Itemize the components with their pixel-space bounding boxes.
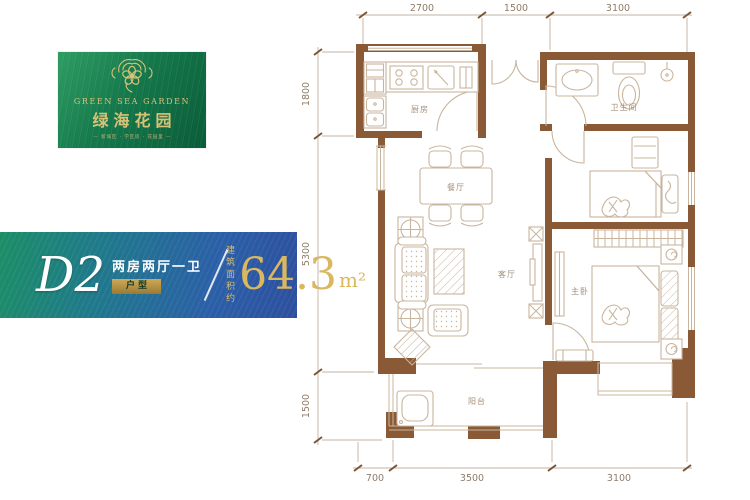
unit-code: D2: [36, 251, 105, 299]
dim-top-2: 1500: [504, 3, 528, 14]
area-prefix-line1: 建筑: [226, 245, 236, 269]
bathroom-fixtures: [556, 62, 673, 109]
kitchen-label: 厨房: [411, 104, 429, 114]
divider-slash: [204, 249, 229, 301]
dim-left-3: 1500: [301, 394, 312, 418]
unit-type-banner: D2 两房两厅一卫 户型 建筑 面积约 64.3 m²: [0, 232, 297, 318]
balcony-furniture: [397, 391, 433, 426]
dim-bottom-1: 700: [366, 473, 384, 484]
master-bedroom-label: 主卧: [571, 286, 589, 296]
dining-label: 餐厅: [447, 183, 465, 192]
bedroom2-furniture: [590, 137, 678, 217]
bedroom2-door: [552, 131, 584, 163]
dim-top-3: 3100: [606, 3, 630, 14]
entry-door-left: [492, 60, 516, 84]
living-label: 客厅: [498, 269, 516, 279]
entry-door-right: [516, 60, 538, 82]
balcony-label: 阳台: [468, 396, 486, 406]
brand-name-zh: 绿海花园: [87, 107, 176, 131]
dim-left-1: 1800: [301, 82, 312, 106]
dim-bottom-2: 3500: [460, 473, 484, 484]
page: GREEN SEA GARDEN 绿海花园 — 新城区 · 学区房 · 花园里 …: [0, 0, 750, 500]
bathroom-label: 卫生间: [611, 102, 638, 112]
floorplan: 2700 1500 3100 1800 5300 1500 700 3500 3…: [300, 0, 750, 500]
unit-desc-block: 两房两厅一卫 户型: [112, 256, 202, 294]
unit-type-badge: 户型: [112, 279, 161, 294]
area-prefix-line2: 面积约: [226, 269, 236, 305]
unit-layout-desc: 两房两厅一卫: [112, 256, 202, 275]
side-table-bottom: [398, 306, 423, 331]
area-prefix: 建筑 面积约: [226, 245, 236, 306]
kitchen-furniture: [364, 62, 478, 128]
kitchen-door: [437, 91, 477, 131]
living-furniture: [394, 227, 543, 365]
dim-left-2: 5300: [301, 242, 312, 266]
brand-logo-card: GREEN SEA GARDEN 绿海花园 — 新城区 · 学区房 · 花园里 …: [58, 52, 206, 148]
dim-top-1: 2700: [410, 3, 434, 14]
brand-tagline: — 新城区 · 学区房 · 花园里 —: [93, 133, 171, 139]
dim-bottom-3: 3100: [607, 473, 631, 484]
flower-emblem-icon: [105, 56, 159, 96]
brand-name-en: GREEN SEA GARDEN: [74, 97, 190, 106]
